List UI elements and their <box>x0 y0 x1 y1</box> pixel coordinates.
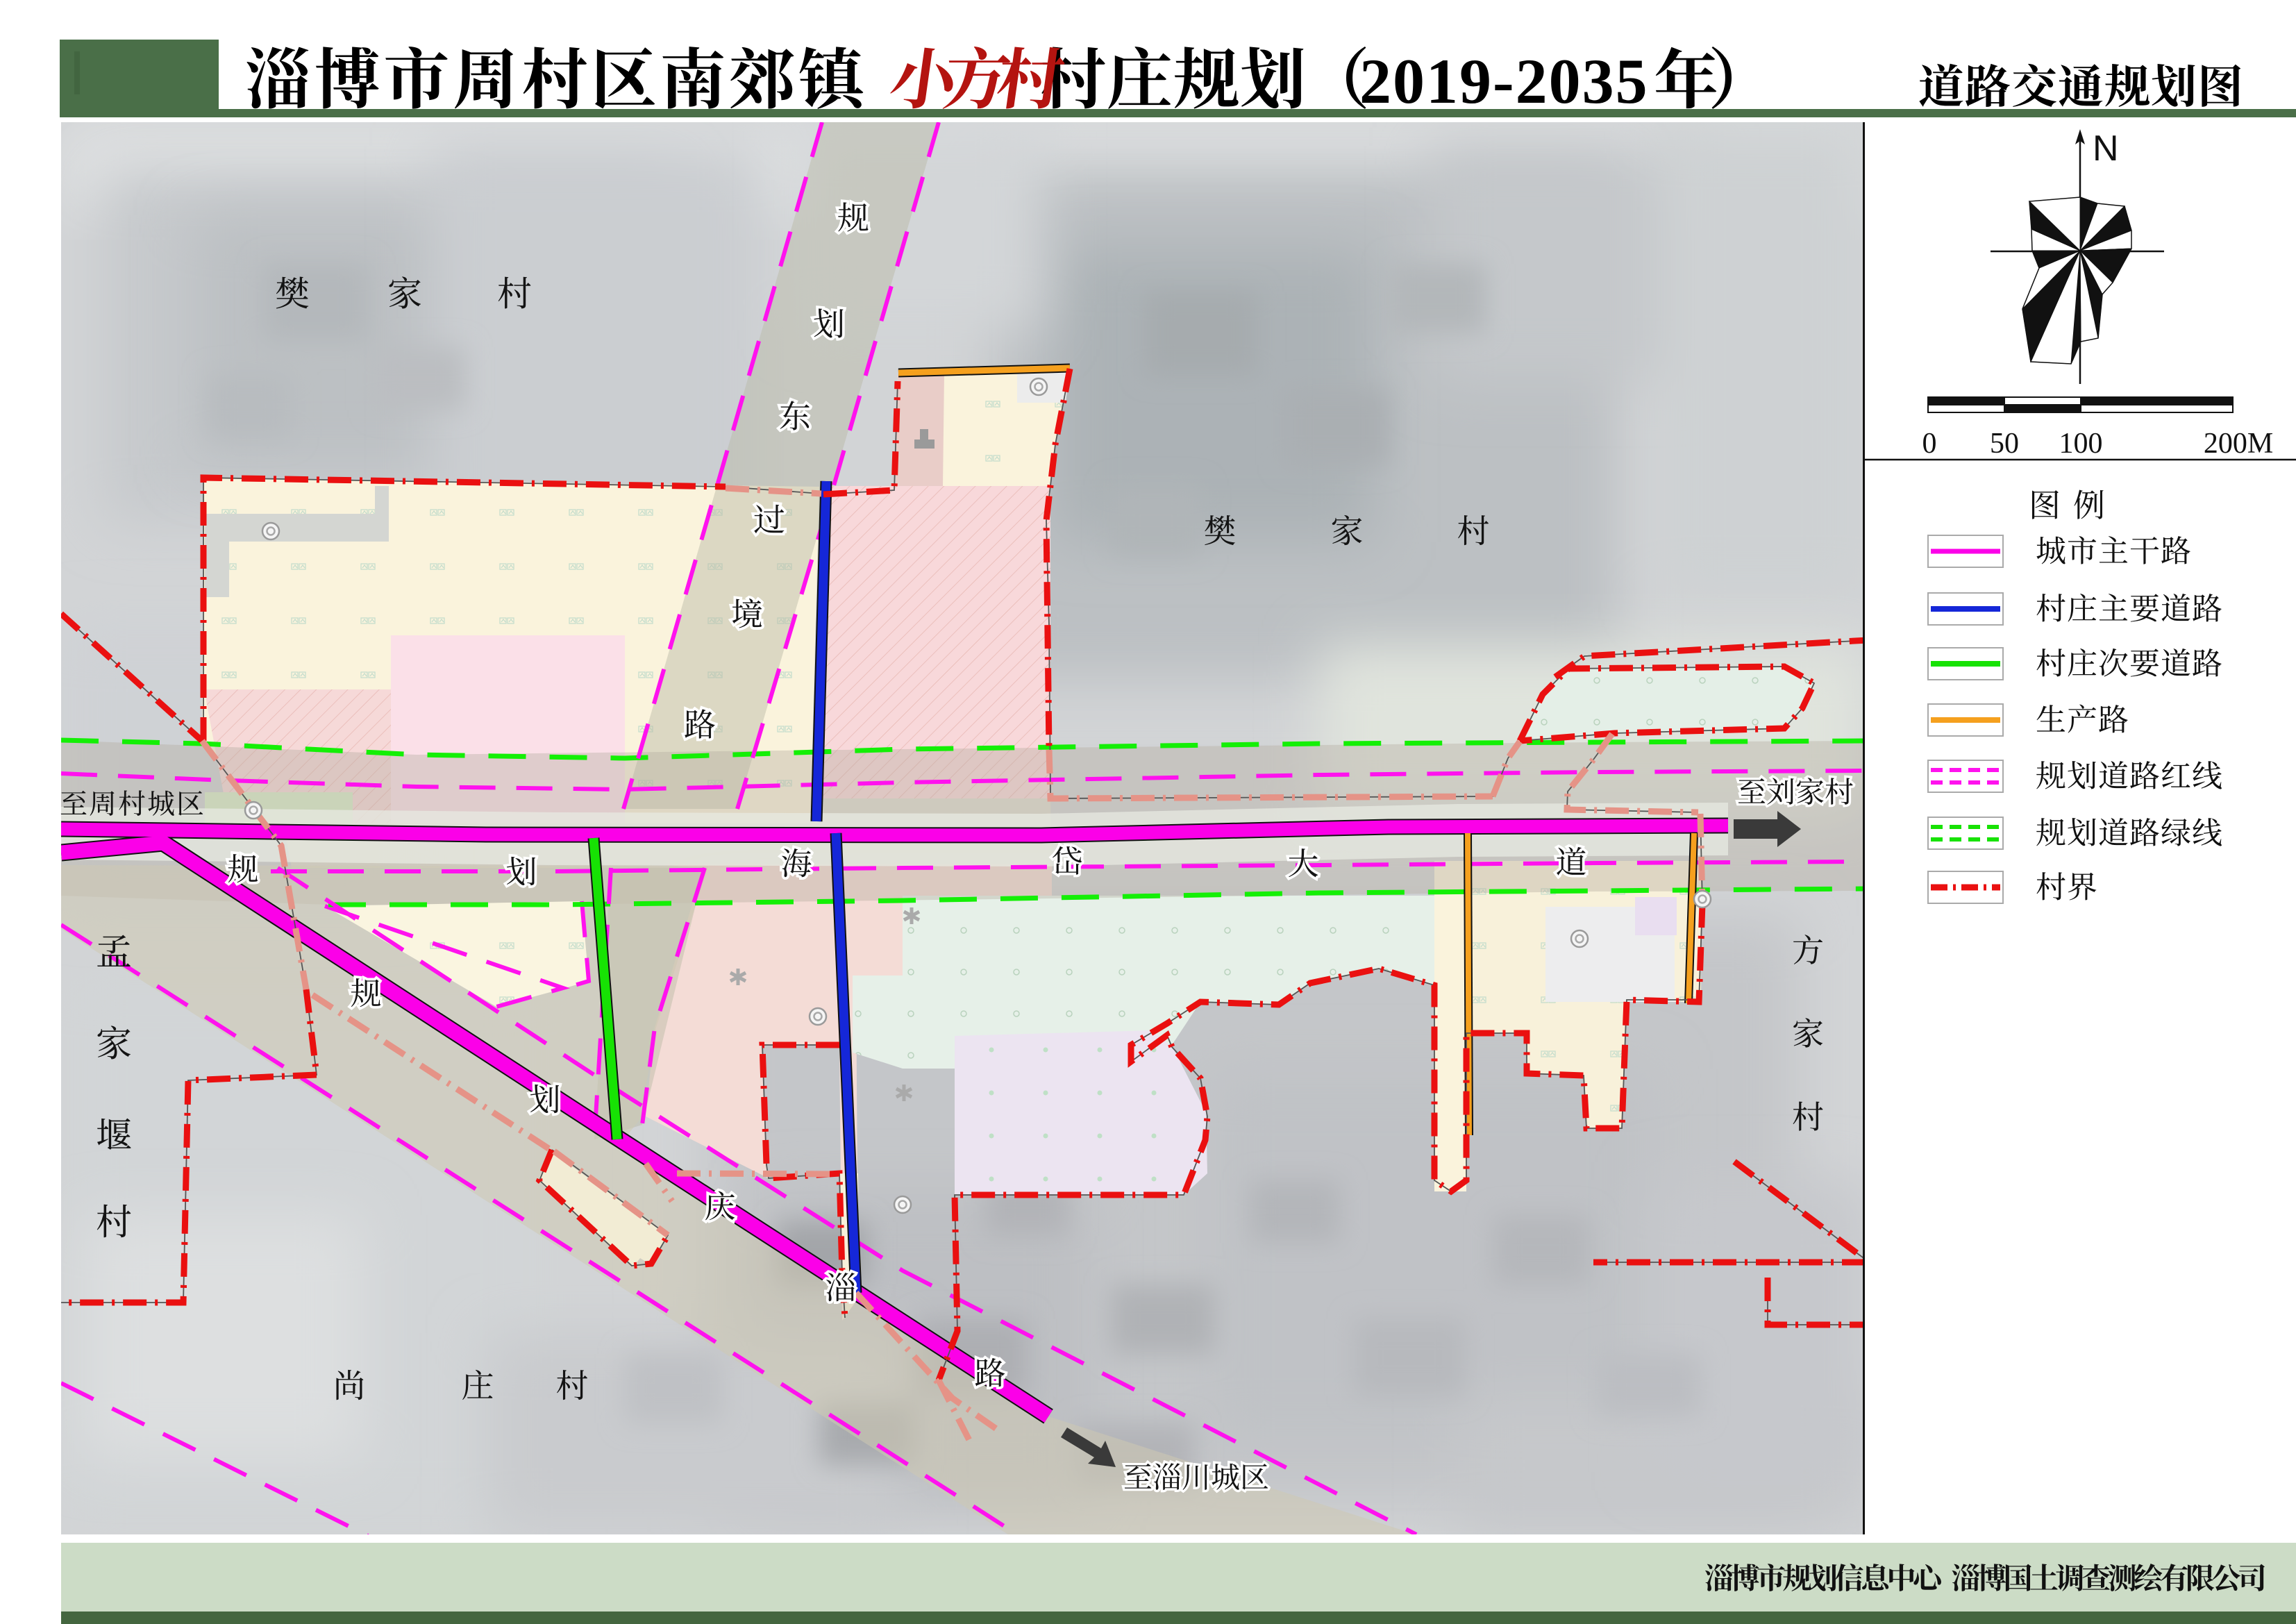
svg-text:50: 50 <box>1990 428 2019 460</box>
svg-text:200M: 200M <box>2204 428 2273 460</box>
svg-text:0: 0 <box>1922 428 1937 460</box>
svg-text:2019-2035: 2019-2035 <box>1359 46 1649 117</box>
svg-text:N: N <box>2093 128 2119 169</box>
svg-text:100: 100 <box>2059 428 2103 460</box>
